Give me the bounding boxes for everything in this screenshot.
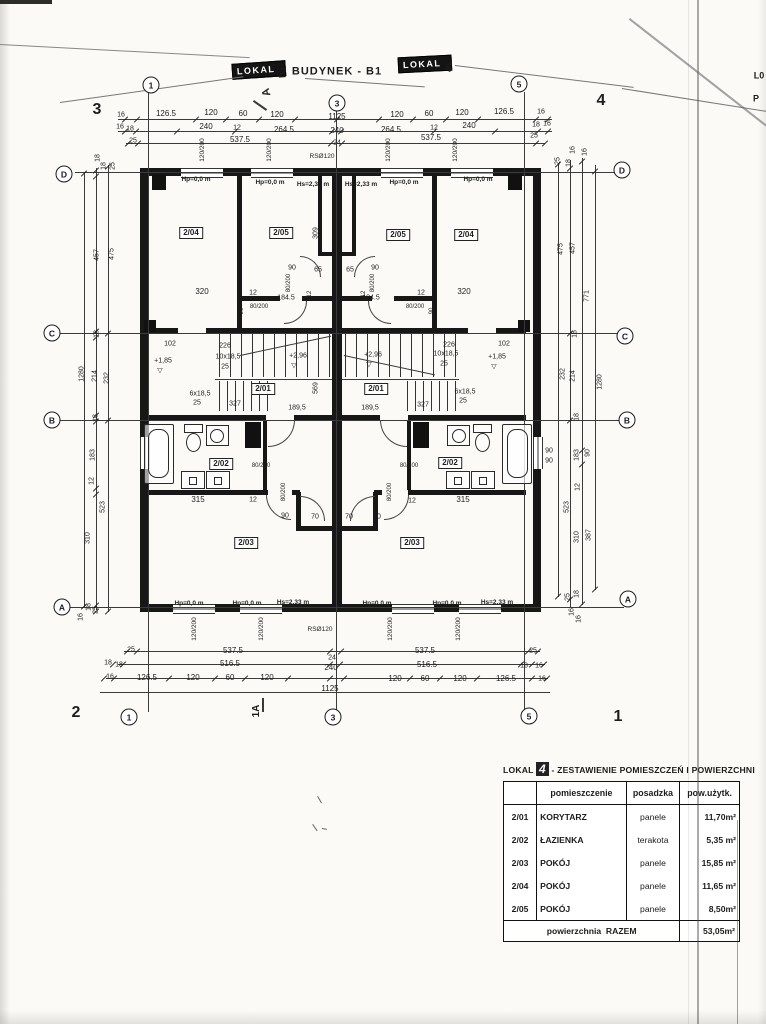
dim-label: 16 <box>106 674 114 681</box>
dim-label: 60 <box>239 110 248 118</box>
wall <box>140 176 148 604</box>
wall <box>296 526 332 531</box>
dim-label: 6x18,5 <box>189 391 210 398</box>
axis-marker-1: 1 <box>143 77 160 94</box>
toilet-bowl <box>186 433 201 452</box>
dim-label: 214 <box>570 370 577 382</box>
cabinet-knob <box>214 477 222 485</box>
stair-tread <box>219 381 220 411</box>
bathtub-inner <box>507 429 528 478</box>
axis-marker-A: A <box>620 591 637 608</box>
dim-label: 25 <box>93 606 100 614</box>
table-footer-label: powierzchnia RAZEM <box>504 921 680 942</box>
dim-label: 18 <box>520 663 528 670</box>
dim-label: 18 <box>115 662 123 669</box>
dim-label: 120 <box>270 111 283 119</box>
dim-label: 126.5 <box>156 110 176 118</box>
chimney-block <box>245 422 261 448</box>
dim-label: 12 <box>249 290 257 297</box>
dim-label: 25 <box>555 157 562 165</box>
dim-label: 80/200 <box>286 274 292 292</box>
cabinet-knob <box>189 477 197 485</box>
dim-label: 25 <box>193 400 201 407</box>
door-swing-arc <box>284 301 307 324</box>
table-title-prefix: LOKAL <box>503 765 533 775</box>
stair-tread <box>274 334 275 377</box>
dim-label: 16 <box>582 148 589 156</box>
dimension-line <box>570 160 571 607</box>
dim-label: 18 <box>574 413 581 421</box>
dimension-line <box>60 333 622 334</box>
stair-tread <box>227 381 228 411</box>
dim-label: 232 <box>104 372 111 384</box>
dim-label: 90 <box>373 514 381 521</box>
dim-label: 18 <box>95 154 102 162</box>
dim-label: 70 <box>311 514 319 521</box>
dim-label: 102 <box>164 341 176 348</box>
clipped-edge-text: P <box>753 95 759 104</box>
stair-tread <box>263 334 264 377</box>
dim-label: 120/200 <box>386 138 393 162</box>
dim-label: 120 <box>388 675 401 683</box>
dim-label: 183 <box>574 449 581 461</box>
drawing-title: BUDYNEK - B1 <box>292 67 382 78</box>
dim-label: RSØ120 <box>308 627 333 634</box>
dim-label: 60 <box>425 110 434 118</box>
dim-label: 12 <box>575 483 582 491</box>
dim-label: 70 <box>345 514 353 521</box>
dim-label: 18 <box>126 126 134 133</box>
dim-label: 120/200 <box>267 138 274 162</box>
window <box>381 168 423 178</box>
table-cell: POKÓJ <box>537 897 627 921</box>
dim-label: 16 <box>543 121 551 128</box>
table-header-cell <box>504 782 537 805</box>
dim-label: 90 <box>545 458 553 465</box>
dim-label: 18 <box>94 330 101 338</box>
table-header-cell: pomieszczenie <box>537 782 627 805</box>
cabinet-knob <box>479 477 487 485</box>
dim-label: 12 <box>408 498 416 505</box>
dimension-line <box>108 165 109 612</box>
table-cell: panele <box>626 874 680 897</box>
dim-label: 120 <box>186 674 199 682</box>
dim-label: Hp=0,0 m <box>389 180 418 187</box>
axis-marker-C: C <box>617 328 634 345</box>
dim-label: Hs=2,33 m <box>297 182 329 189</box>
cabinet-knob <box>454 477 462 485</box>
dim-label: 16 <box>538 676 546 683</box>
dim-label: 1280 <box>79 366 86 382</box>
table-title-rest: - ZESTAWIENIE POMIESZCZEŃ I POWIERZCHNI <box>552 765 755 775</box>
dim-label: 80/200 <box>406 304 424 310</box>
dim-label: 60 <box>421 675 430 683</box>
dim-label: 120/200 <box>388 617 395 641</box>
dim-label: 184.5 <box>277 295 295 302</box>
dim-label: 90 <box>371 265 379 272</box>
dim-label: 240 <box>462 122 475 130</box>
dim-label: 16 <box>535 663 543 670</box>
lokal-badge-right: LOKAL4 <box>398 55 453 78</box>
table-row: 2/02ŁAZIENKAterakota5,35 m² <box>504 828 740 851</box>
wall <box>263 420 267 490</box>
page-corner-number: 3 <box>93 102 102 118</box>
dim-label: 12 <box>307 291 313 298</box>
dim-label: 80/200 <box>281 483 287 501</box>
dim-label: 12 <box>430 125 438 132</box>
door-swing-arc <box>380 420 407 447</box>
dim-label: 25 <box>127 647 135 654</box>
room-label: 2/01 <box>364 383 388 395</box>
stair-tread <box>241 334 242 377</box>
dim-label: 60 <box>226 674 235 682</box>
stair-tread <box>252 334 253 377</box>
dim-label: 264.5 <box>274 126 294 134</box>
table-cell: 2/05 <box>504 897 537 921</box>
dim-label: 65 <box>314 267 322 274</box>
dim-label: 24 <box>333 140 341 147</box>
dim-label: 126.5 <box>496 675 516 683</box>
wall <box>332 176 342 604</box>
dimension-tick <box>592 586 598 592</box>
stair-tread <box>329 334 330 377</box>
table-cell: POKÓJ <box>537 851 627 874</box>
axis-marker-3: 3 <box>329 95 346 112</box>
area-schedule: LOKAL 4 - ZESTAWIENIE POMIESZCZEŃ I POWI… <box>503 762 755 942</box>
scan-fold-line <box>697 0 699 1024</box>
dim-label: 310 <box>85 532 92 544</box>
dim-label: 16 <box>537 109 545 116</box>
dim-label: 240 <box>324 664 337 672</box>
area-table: pomieszczenie posadzka pow.użytk. 2/01KO… <box>503 781 740 942</box>
window <box>533 437 543 469</box>
dim-label: ▽ <box>491 364 496 371</box>
dim-label: 771 <box>584 290 591 302</box>
stair-tread <box>407 381 408 411</box>
stair-tread <box>431 381 432 411</box>
dim-label: 120 <box>453 675 466 683</box>
dim-label: 16 <box>117 112 125 119</box>
wall <box>533 176 541 604</box>
dim-label: 16 <box>78 613 85 621</box>
door-swing-arc <box>268 420 295 447</box>
dim-label: 232 <box>560 368 567 380</box>
dimension-line <box>215 379 332 380</box>
dim-label: 327 <box>417 402 429 409</box>
lokal-badge-left: LOKAL2 <box>231 60 287 84</box>
dim-label: 120/200 <box>456 617 463 641</box>
window <box>251 168 293 178</box>
stair-tread <box>345 334 346 377</box>
dim-label: 320 <box>195 288 208 296</box>
dim-label: 80/200 <box>387 483 393 501</box>
badge-handwritten-number: 2 <box>278 64 287 81</box>
stair-tread <box>455 381 456 411</box>
table-header-row: pomieszczenie posadzka pow.użytk. <box>504 782 740 805</box>
wall <box>394 296 432 301</box>
dimension-line <box>262 698 264 712</box>
table-cell: 2/02 <box>504 828 537 851</box>
section-marker: A <box>261 87 274 98</box>
room-label: 2/04 <box>179 227 203 239</box>
dimension-tick <box>105 608 111 614</box>
dimension-line <box>336 110 337 712</box>
dim-label: +2,96 <box>289 353 307 360</box>
dim-label: 80/200 <box>370 274 376 292</box>
table-cell: 2/04 <box>504 874 537 897</box>
dim-label: 25 <box>565 593 572 601</box>
dim-label: 537.5 <box>421 134 441 142</box>
stair-tread <box>439 381 440 411</box>
dim-label: ▽ <box>291 363 296 370</box>
axis-marker-D: D <box>614 162 631 179</box>
stair-tread <box>389 334 390 377</box>
table-cell: 2/03 <box>504 851 537 874</box>
dim-label: 102 <box>498 341 510 348</box>
dim-label: 183 <box>90 449 97 461</box>
table-row: 2/04POKÓJpanele11,65 m² <box>504 874 740 897</box>
dim-label: 523 <box>100 501 107 513</box>
dim-label: 25 <box>221 364 229 371</box>
wall <box>318 252 332 256</box>
dim-label: 12 <box>233 125 241 132</box>
dim-label: 516.5 <box>220 660 240 668</box>
section-marker: 1A <box>252 705 262 718</box>
dim-label: 25 <box>530 133 538 140</box>
dim-label: 25 <box>529 648 537 655</box>
axis-marker-3: 3 <box>325 709 342 726</box>
dim-label: 90 <box>585 449 592 457</box>
dimension-line <box>96 168 97 610</box>
stair-tread <box>307 334 308 377</box>
dim-label: 569 <box>313 382 320 394</box>
dim-label: 315 <box>456 496 469 504</box>
axis-marker-D: D <box>56 166 73 183</box>
scan-edge-sliver <box>0 0 52 4</box>
page-corner-number: 4 <box>597 93 606 109</box>
axis-marker-5: 5 <box>511 76 528 93</box>
dimension-line <box>305 78 425 87</box>
stair-tread <box>356 334 357 377</box>
dimension-line <box>0 44 250 58</box>
axis-marker-5: 5 <box>521 708 538 725</box>
dim-label: 457 <box>570 242 577 254</box>
dim-label: Hs=2,33 m <box>481 600 513 607</box>
wall <box>237 176 242 328</box>
dim-label: 240 <box>330 127 343 135</box>
dimension-line <box>582 158 583 605</box>
stair-tread <box>318 334 319 377</box>
dim-label: 120 <box>204 109 217 117</box>
dim-label: +1,85 <box>154 358 172 365</box>
room-label: 2/04 <box>454 229 478 241</box>
dim-label: 475 <box>558 243 565 255</box>
dim-label: 18 <box>101 162 108 170</box>
chimney-block <box>413 422 429 448</box>
badge-handwritten-number: 4 <box>444 59 453 75</box>
dim-label: 18 <box>574 590 581 598</box>
dim-label: 12 <box>417 290 425 297</box>
dim-label: 120 <box>455 109 468 117</box>
dim-label: Hp=0,0 m <box>362 601 391 608</box>
dimension-line <box>75 172 620 173</box>
table-cell: panele <box>626 897 680 921</box>
room-label: 2/02 <box>438 457 462 469</box>
dim-label: ▽ <box>366 362 371 369</box>
toilet-tank <box>473 424 492 433</box>
dimension-line <box>124 651 540 652</box>
dim-label: 189,5 <box>288 405 306 412</box>
dim-label: 264.5 <box>381 126 401 134</box>
dim-label: Hs=2,33 m <box>277 600 309 607</box>
dim-label: 12 <box>89 477 96 485</box>
scanned-floor-plan-page: BUDYNEK - B1 LOKAL2 LOKAL4 135135DCBADCB… <box>0 0 766 1024</box>
dim-label: 126.5 <box>137 674 157 682</box>
dim-label: 18 <box>93 414 100 422</box>
dim-label: 90 <box>281 513 289 520</box>
chimney-block <box>144 320 156 332</box>
dim-label: 309 <box>313 227 320 239</box>
room-label: 2/05 <box>269 227 293 239</box>
dimension-line <box>558 163 559 597</box>
dim-label: 16 <box>116 124 124 131</box>
dimension-tick <box>542 140 548 146</box>
scan-fold-line <box>688 0 689 1024</box>
table-footer-row: powierzchnia RAZEM 53,05m² <box>504 921 740 942</box>
dim-label: 80/200 <box>400 463 418 469</box>
door-swing-arc <box>368 301 391 324</box>
chimney-block <box>152 174 166 190</box>
axis-marker-B: B <box>619 412 636 429</box>
dim-label: 120/200 <box>200 138 207 162</box>
dim-label: 90 <box>545 448 553 455</box>
dim-label: Hp=0,0 m <box>432 601 461 608</box>
dim-label: +1,85 <box>488 354 506 361</box>
dim-label: ▽ <box>157 368 162 375</box>
dim-label: +2,96 <box>364 352 382 359</box>
room-label: 2/03 <box>400 537 424 549</box>
page-corner-number: 2 <box>72 705 81 721</box>
dim-label: 90 <box>429 308 435 315</box>
wall <box>342 252 356 256</box>
dim-label: 18 <box>566 159 573 167</box>
dim-label: 120/200 <box>192 617 199 641</box>
dim-label: 537.5 <box>230 136 250 144</box>
window <box>392 604 434 614</box>
dimension-line <box>455 65 634 88</box>
dim-label: 214 <box>92 370 99 382</box>
wall <box>242 296 280 301</box>
dim-label: 18 <box>104 660 112 667</box>
axis-marker-1: 1 <box>121 709 138 726</box>
dim-label: 120 <box>260 674 273 682</box>
dim-label: 184.5 <box>362 295 380 302</box>
stair-tread <box>411 334 412 377</box>
dim-label: Hp=0,0 m <box>174 601 203 608</box>
table-header-cell: posadzka <box>626 782 680 805</box>
dim-label: 25 <box>459 398 467 405</box>
dim-label: 523 <box>564 501 571 513</box>
dim-label: 10x18,5 <box>434 351 459 358</box>
dim-label: 90 <box>239 308 245 315</box>
dim-label: 65 <box>346 267 354 274</box>
dim-label: 120 <box>390 111 403 119</box>
dim-label: 387 <box>586 529 593 541</box>
room-label: 2/02 <box>209 458 233 470</box>
page-corner-number: 1 <box>614 709 623 725</box>
dim-label: 189,5 <box>361 405 379 412</box>
dim-label: Hp=0,0 m <box>255 180 284 187</box>
dim-label: 537.5 <box>415 647 435 655</box>
room-label: 2/03 <box>234 537 258 549</box>
dim-label: Hp=0,0 m <box>232 601 261 608</box>
dim-label: 126.5 <box>494 108 514 116</box>
dim-label: Hs=2,33 m <box>345 182 377 189</box>
dim-label: 1125 <box>321 685 338 693</box>
room-label: 2/05 <box>386 229 410 241</box>
dim-label: 90 <box>288 265 296 272</box>
table-cell: POKÓJ <box>537 874 627 897</box>
dimension-line <box>70 607 624 608</box>
dim-label: 25 <box>440 361 448 368</box>
door-swing-arc <box>350 496 375 521</box>
table-cell: panele <box>626 851 680 874</box>
table-cell: KORYTARZ <box>537 805 627 829</box>
dimension-line <box>322 828 327 830</box>
wall <box>342 526 378 531</box>
table-cell: ŁAZIENKA <box>537 828 627 851</box>
dimension-line <box>253 100 267 110</box>
dim-label: 120/200 <box>453 138 460 162</box>
table-title-handwritten-number: 4 <box>536 762 549 776</box>
stair-tread <box>243 381 244 411</box>
dimension-tick <box>555 593 561 599</box>
dimension-line <box>317 796 322 803</box>
dim-label: 80/200 <box>252 463 270 469</box>
dim-label: 240 <box>199 123 212 131</box>
dim-label: RSØ120 <box>310 154 335 161</box>
dim-label: 320 <box>457 288 470 296</box>
dim-label: 18 <box>572 330 579 338</box>
room-label: 2/01 <box>251 383 275 395</box>
stair-tread <box>400 334 401 377</box>
dim-label: 16 <box>576 615 583 623</box>
axis-marker-C: C <box>44 325 61 342</box>
wall <box>407 420 411 490</box>
table-cell: 2/01 <box>504 805 537 829</box>
wall <box>432 176 437 328</box>
dim-label: 226 <box>219 343 231 350</box>
bathtub-inner <box>148 429 169 478</box>
stair-tread <box>447 381 448 411</box>
dim-label: 537.5 <box>223 647 243 655</box>
dim-label: 310 <box>574 531 581 543</box>
dim-label: 457 <box>94 249 101 261</box>
axis-marker-A: A <box>54 599 71 616</box>
dim-label: 6x18,5 <box>454 389 475 396</box>
dim-label: Hp=0,0 m <box>463 177 492 184</box>
dim-label: 18 <box>532 122 540 129</box>
dim-label: Hp=0,0 m <box>181 177 210 184</box>
dim-label: 12 <box>249 497 257 504</box>
dim-label: 25 <box>129 138 137 145</box>
clipped-edge-text: L0 <box>754 72 765 81</box>
table-cell: panele <box>626 805 680 829</box>
stair-tread <box>285 334 286 377</box>
dim-label: 315 <box>191 496 204 504</box>
toilet-tank <box>184 424 203 433</box>
table-row: 2/03POKÓJpanele15,85 m² <box>504 851 740 874</box>
